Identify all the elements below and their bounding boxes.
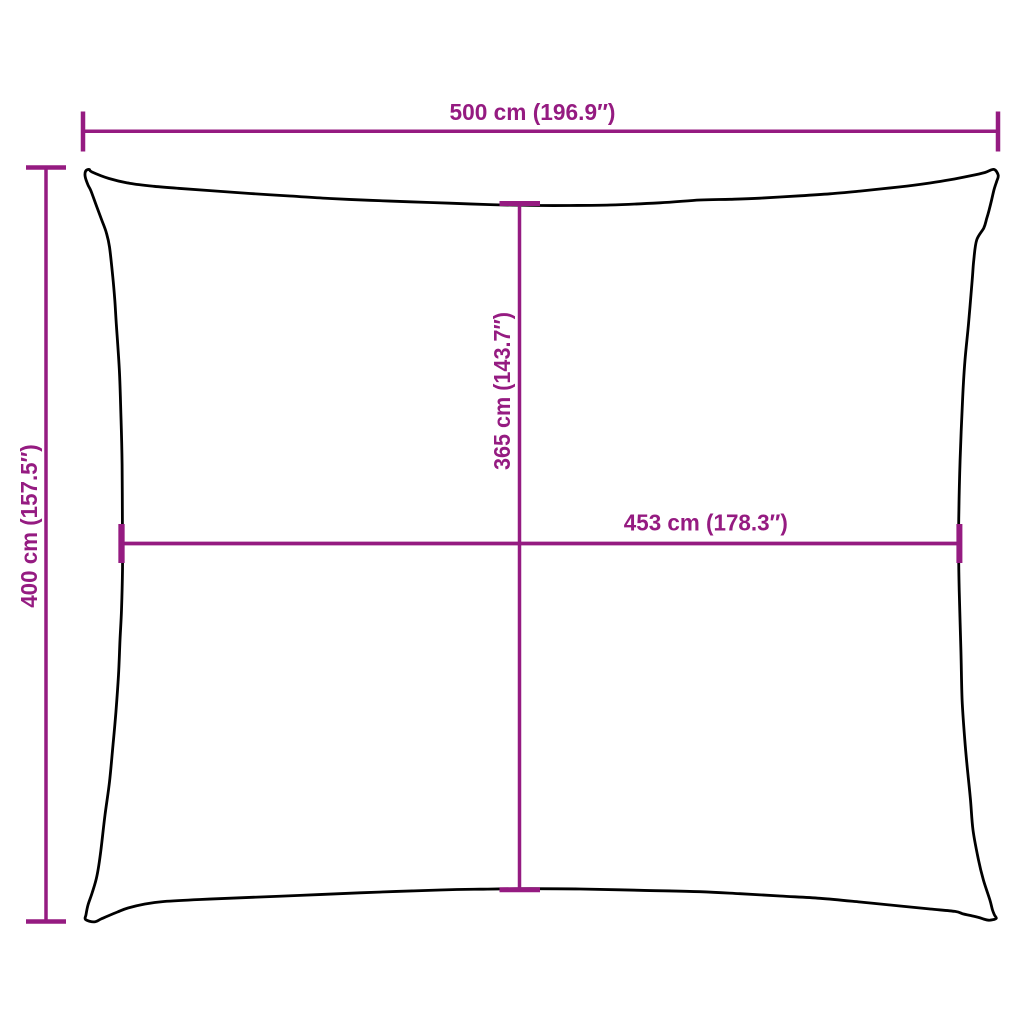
- svg-text:453 cm (178.3″): 453 cm (178.3″): [624, 510, 788, 536]
- svg-text:365 cm (143.7″): 365 cm (143.7″): [489, 312, 515, 470]
- svg-text:500 cm (196.9″): 500 cm (196.9″): [450, 99, 616, 125]
- svg-text:400 cm (157.5″): 400 cm (157.5″): [16, 444, 42, 608]
